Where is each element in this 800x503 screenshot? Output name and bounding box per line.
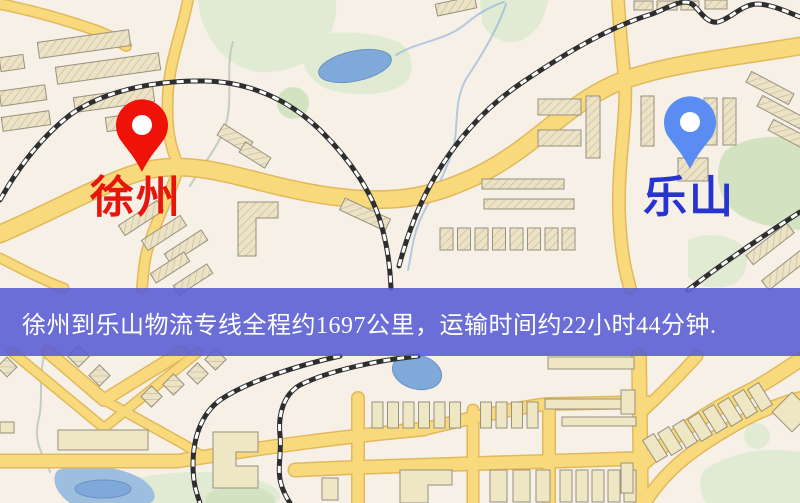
route-info-text: 徐州到乐山物流专线全程约1697公里，运输时间约22小时44分钟. [22, 305, 717, 340]
map-canvas[interactable] [0, 0, 800, 503]
destination-city-label: 乐山 [643, 176, 735, 220]
map-viewport[interactable]: 徐州 乐山 徐州到乐山物流专线全程约1697公里，运输时间约22小时44分钟. [0, 0, 800, 503]
origin-city-label: 徐州 [90, 176, 182, 220]
route-info-banner: 徐州到乐山物流专线全程约1697公里，运输时间约22小时44分钟. [0, 288, 800, 356]
